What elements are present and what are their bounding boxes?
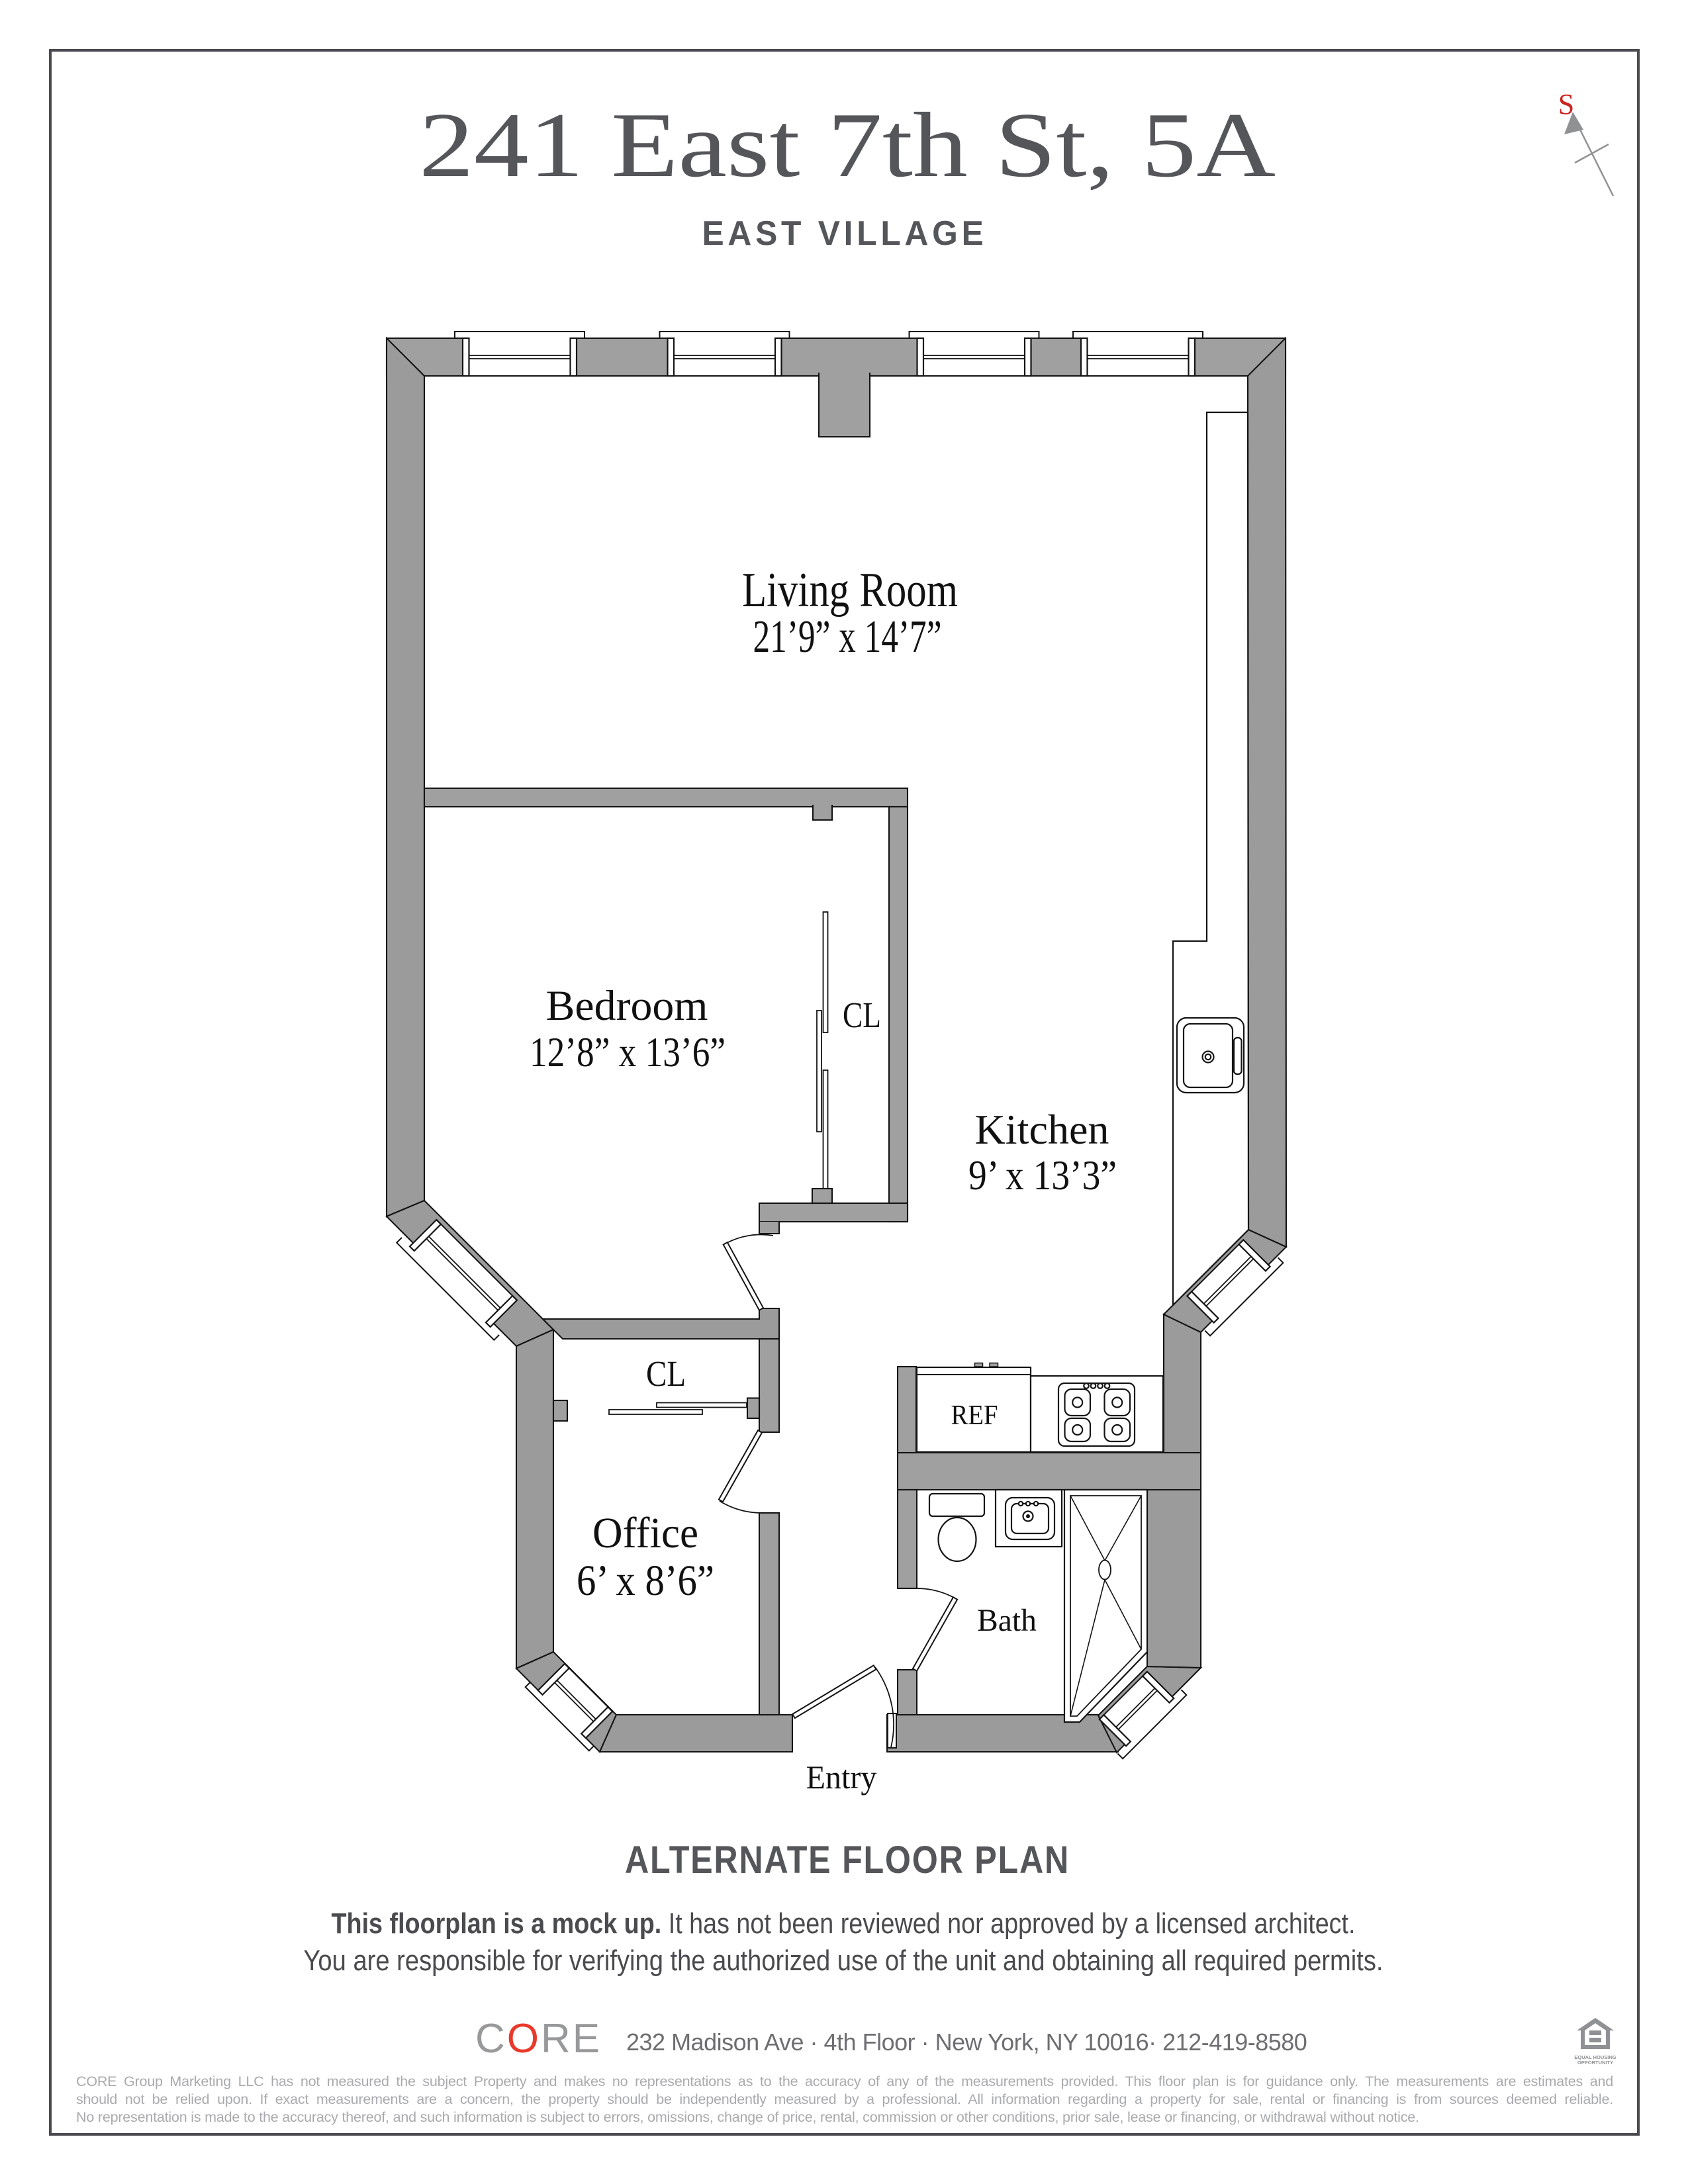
svg-text:ALTERNATE FLOOR PLAN: ALTERNATE FLOOR PLAN bbox=[625, 1839, 1070, 1882]
svg-text:REF: REF bbox=[951, 1400, 998, 1431]
svg-text:Bedroom: Bedroom bbox=[546, 982, 708, 1030]
svg-text:This floorplan is a mock up. I: This floorplan is a mock up. It has not … bbox=[332, 1907, 1356, 1940]
svg-text:Kitchen: Kitchen bbox=[975, 1106, 1109, 1153]
svg-text:12’8” x 13’6”: 12’8” x 13’6” bbox=[530, 1028, 726, 1075]
svg-text:241 East 7th St, 5A: 241 East 7th St, 5A bbox=[419, 94, 1276, 197]
svg-text:Entry: Entry bbox=[806, 1758, 877, 1796]
svg-text:232 Madison Ave · 4th Floor ·: 232 Madison Ave · 4th Floor · New York, … bbox=[626, 2028, 1307, 2056]
svg-text:CORE: CORE bbox=[475, 2016, 602, 2062]
svg-text:S: S bbox=[1558, 88, 1574, 120]
svg-text:CL: CL bbox=[843, 995, 881, 1035]
svg-text:You are responsible for verify: You are responsible for verifying the au… bbox=[304, 1944, 1383, 1977]
svg-text:21’9” x 14’7”: 21’9” x 14’7” bbox=[753, 612, 942, 662]
svg-text:6’ x 8’6”: 6’ x 8’6” bbox=[577, 1557, 714, 1605]
svg-text:9’ x 13’3”: 9’ x 13’3” bbox=[968, 1152, 1117, 1199]
svg-text:Bath: Bath bbox=[977, 1603, 1037, 1638]
svg-text:Office: Office bbox=[592, 1509, 698, 1557]
svg-text:CL: CL bbox=[646, 1353, 686, 1394]
svg-text:Living Room: Living Room bbox=[742, 563, 958, 617]
svg-text:EAST VILLAGE: EAST VILLAGE bbox=[702, 214, 988, 253]
